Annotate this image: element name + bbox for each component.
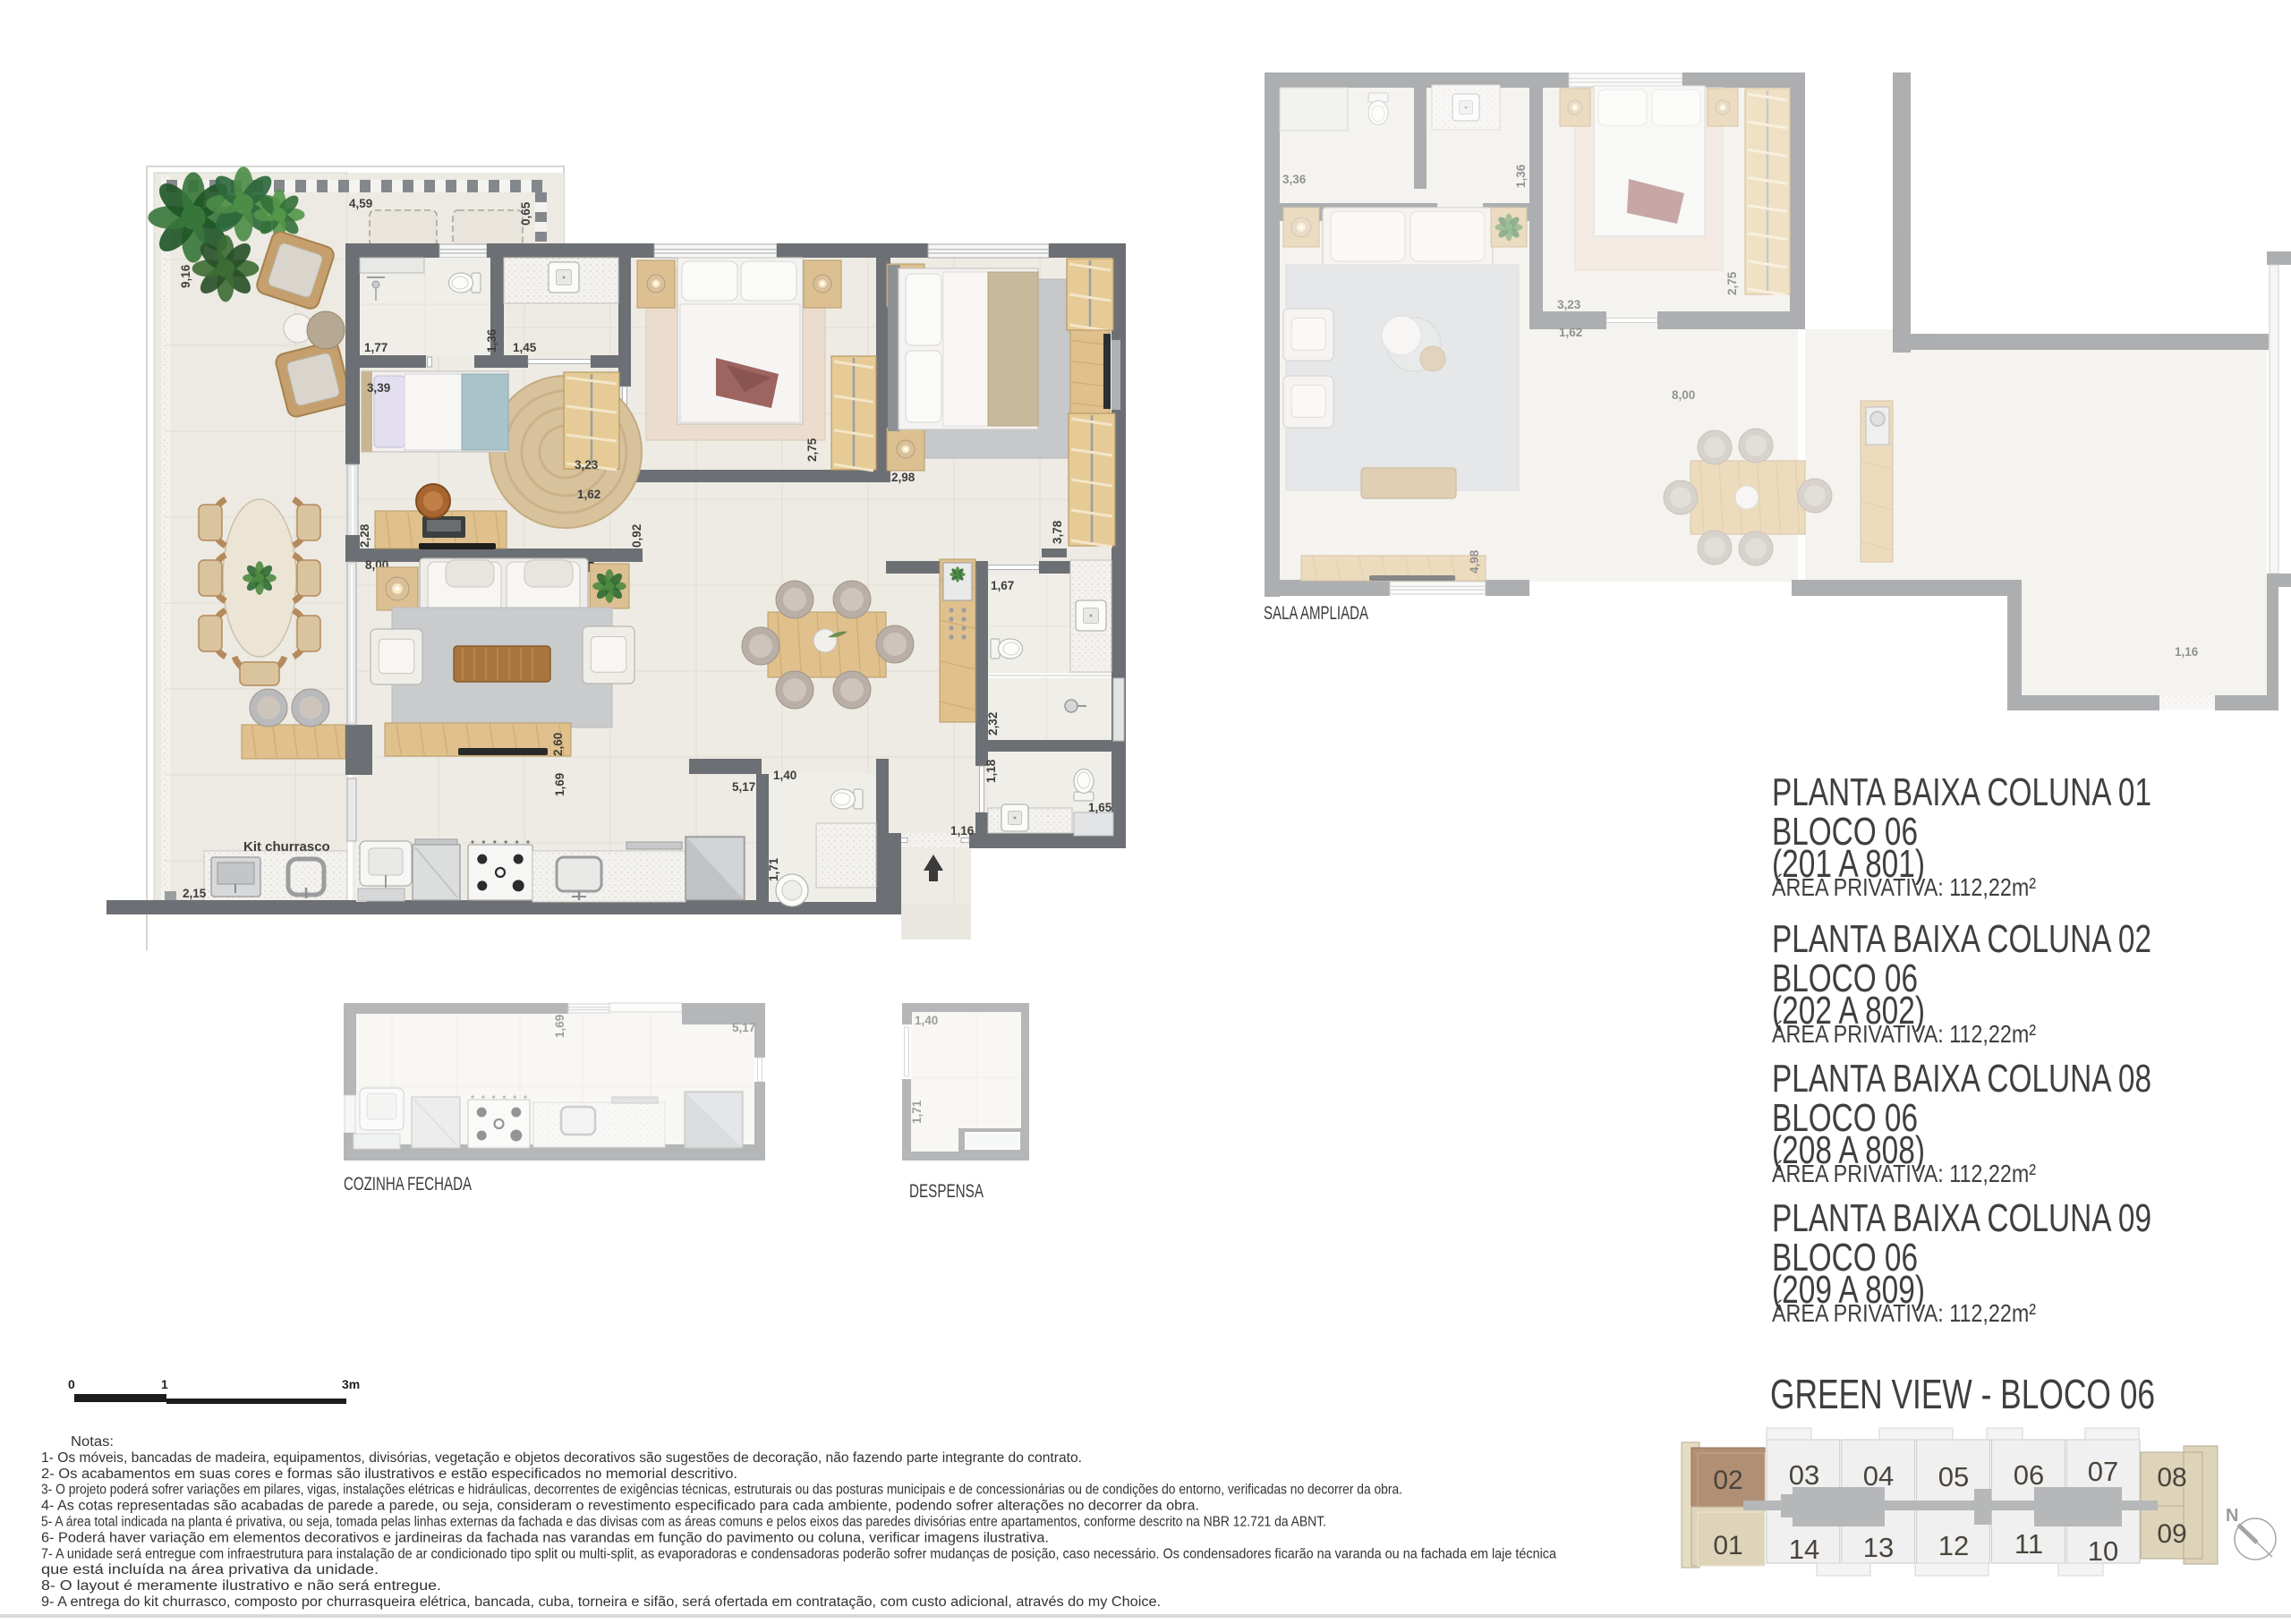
svg-text:3,23: 3,23 xyxy=(1557,298,1581,311)
svg-text:4- As cotas representadas são: 4- As cotas representadas são acabadas d… xyxy=(41,1499,1199,1514)
svg-text:2,15: 2,15 xyxy=(183,887,207,900)
svg-text:Kit churrasco: Kit churrasco xyxy=(243,839,330,855)
svg-text:12: 12 xyxy=(1938,1530,1969,1561)
svg-text:2- Os acabamentos em suas core: 2- Os acabamentos em suas cores e formas… xyxy=(41,1467,737,1482)
svg-text:GREEN VIEW - BLOCO 06: GREEN VIEW - BLOCO 06 xyxy=(1770,1371,2155,1417)
svg-text:1,71: 1,71 xyxy=(910,1100,924,1124)
svg-text:9- A entrega do kit churrasco,: 9- A entrega do kit churrasco, composto … xyxy=(41,1594,1161,1610)
svg-text:08: 08 xyxy=(2157,1463,2186,1492)
svg-text:9,16: 9,16 xyxy=(179,264,192,288)
svg-text:1,40: 1,40 xyxy=(773,769,796,782)
svg-text:3,78: 3,78 xyxy=(1051,520,1064,544)
svg-text:0,92: 0,92 xyxy=(630,524,643,548)
svg-text:11: 11 xyxy=(2014,1528,2043,1560)
svg-text:4,98: 4,98 xyxy=(1468,549,1481,574)
svg-text:Notas:: Notas: xyxy=(71,1434,114,1450)
svg-text:2,28: 2,28 xyxy=(358,523,371,548)
svg-text:2,32: 2,32 xyxy=(986,712,1000,735)
svg-text:1,16: 1,16 xyxy=(2175,645,2199,659)
svg-text:PLANTA BAIXA COLUNA 08: PLANTA BAIXA COLUNA 08 xyxy=(1772,1057,2151,1101)
svg-text:1,18: 1,18 xyxy=(984,759,998,783)
svg-text:1- Os móveis, bancadas de made: 1- Os móveis, bancadas de madeira, equip… xyxy=(41,1450,1082,1466)
svg-text:03: 03 xyxy=(1789,1459,1819,1491)
svg-text:7- A unidade será entregue com: 7- A unidade será entregue com infraestr… xyxy=(41,1546,1556,1561)
svg-text:2,98: 2,98 xyxy=(891,471,916,484)
svg-text:5- A área total indicada na pl: 5- A área total indicada na planta é pri… xyxy=(41,1515,1326,1530)
svg-text:1,71: 1,71 xyxy=(767,857,780,881)
svg-text:1,67: 1,67 xyxy=(991,579,1014,592)
svg-text:8,00: 8,00 xyxy=(1672,388,1695,402)
svg-text:5,17: 5,17 xyxy=(732,1021,755,1034)
svg-text:6- Poderá haver variação em el: 6- Poderá haver variação em elementos de… xyxy=(41,1530,1049,1545)
svg-text:ÁREA PRIVATIVA: 112,22m²: ÁREA PRIVATIVA: 112,22m² xyxy=(1772,1160,2036,1187)
svg-text:2,60: 2,60 xyxy=(551,733,565,756)
svg-text:05: 05 xyxy=(1938,1461,1969,1492)
svg-text:ÁREA PRIVATIVA: 112,22m²: ÁREA PRIVATIVA: 112,22m² xyxy=(1772,1299,2036,1327)
svg-text:1,62: 1,62 xyxy=(577,488,600,501)
svg-text:COZINHA FECHADA: COZINHA FECHADA xyxy=(344,1174,472,1195)
svg-text:14: 14 xyxy=(1789,1534,1819,1565)
svg-text:1,77: 1,77 xyxy=(364,341,388,354)
svg-text:ÁREA PRIVATIVA: 112,22m²: ÁREA PRIVATIVA: 112,22m² xyxy=(1772,1020,2036,1048)
svg-text:PLANTA BAIXA COLUNA 01: PLANTA BAIXA COLUNA 01 xyxy=(1772,770,2151,814)
svg-text:0: 0 xyxy=(68,1377,75,1391)
svg-text:1,45: 1,45 xyxy=(513,341,537,354)
svg-text:SALA AMPLIADA: SALA AMPLIADA xyxy=(1264,603,1368,624)
svg-text:3,39: 3,39 xyxy=(367,381,390,395)
svg-text:1,36: 1,36 xyxy=(1514,164,1528,188)
svg-text:3,23: 3,23 xyxy=(575,458,599,472)
svg-text:PLANTA BAIXA COLUNA 09: PLANTA BAIXA COLUNA 09 xyxy=(1772,1196,2151,1240)
svg-text:DESPENSA: DESPENSA xyxy=(909,1181,984,1202)
svg-text:10: 10 xyxy=(2088,1535,2118,1567)
svg-text:3- O projeto poderá sofrer var: 3- O projeto poderá sofrer variações em … xyxy=(41,1483,1402,1498)
svg-text:13: 13 xyxy=(1863,1532,1894,1563)
svg-text:1,16: 1,16 xyxy=(950,824,975,838)
svg-text:09: 09 xyxy=(2157,1519,2186,1549)
svg-text:01: 01 xyxy=(1713,1531,1742,1560)
svg-text:1,65: 1,65 xyxy=(1088,801,1112,814)
svg-text:1,69: 1,69 xyxy=(553,1015,566,1038)
svg-text:5,17: 5,17 xyxy=(732,780,755,794)
svg-text:1: 1 xyxy=(161,1377,168,1391)
svg-text:8- O layout é meramente ilustr: 8- O layout é meramente ilustrativo e nã… xyxy=(41,1578,441,1594)
svg-text:3m: 3m xyxy=(342,1377,360,1391)
svg-text:0,65: 0,65 xyxy=(519,201,532,225)
svg-text:06: 06 xyxy=(2014,1459,2044,1491)
svg-text:que está incluída na área priv: que está incluída na área privativa da u… xyxy=(41,1562,379,1577)
svg-text:1,36: 1,36 xyxy=(485,328,498,353)
svg-text:1,62: 1,62 xyxy=(1559,326,1582,339)
svg-text:N: N xyxy=(2226,1506,2238,1526)
svg-text:02: 02 xyxy=(1713,1466,1742,1495)
svg-text:1,40: 1,40 xyxy=(915,1014,938,1027)
svg-text:2,75: 2,75 xyxy=(805,438,819,462)
svg-text:04: 04 xyxy=(1863,1460,1894,1492)
svg-text:1,69: 1,69 xyxy=(553,773,566,796)
svg-text:4,59: 4,59 xyxy=(349,197,372,210)
svg-text:3,36: 3,36 xyxy=(1282,173,1307,186)
svg-text:PLANTA BAIXA COLUNA 02: PLANTA BAIXA COLUNA 02 xyxy=(1772,917,2151,961)
svg-text:ÁREA PRIVATIVA: 112,22m²: ÁREA PRIVATIVA: 112,22m² xyxy=(1772,873,2036,901)
svg-text:2,75: 2,75 xyxy=(1725,271,1739,295)
svg-text:07: 07 xyxy=(2088,1456,2118,1487)
